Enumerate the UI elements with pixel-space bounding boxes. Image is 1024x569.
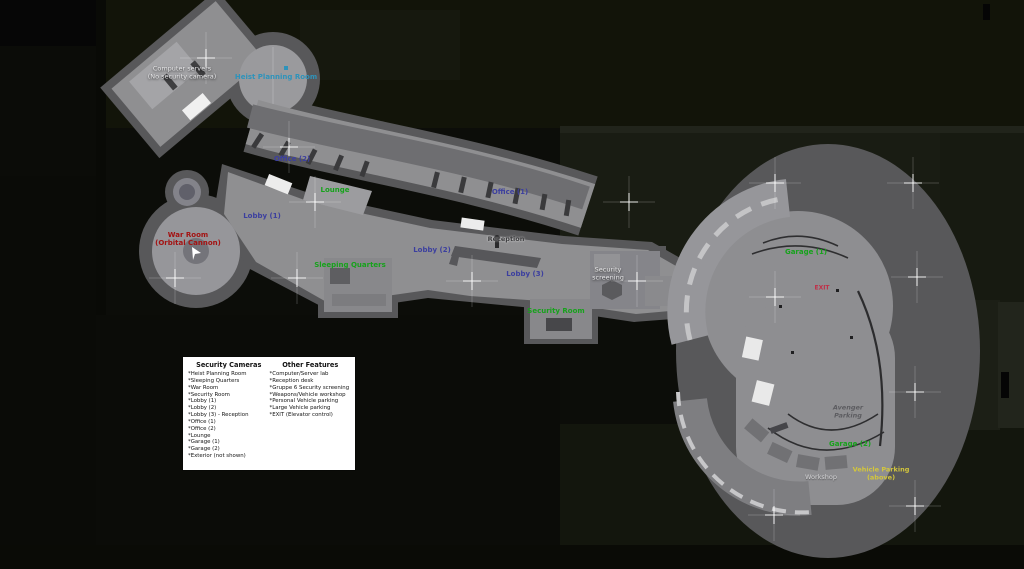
legend-item: *Personal Vehicle parking — [270, 398, 352, 405]
label-line: Lounge — [321, 186, 350, 194]
label-lobby-1: Lobby (1) — [243, 212, 281, 220]
label-security-screening: Securityscreening — [592, 266, 624, 281]
legend-other-features-list: *Computer/Server lab *Reception desk *Gr… — [270, 371, 352, 419]
legend-item: *Computer/Server lab — [270, 371, 352, 378]
label-vehicle-parking: Vehicle Parking(above) — [853, 466, 910, 481]
label-office-2: Office (2) — [274, 155, 310, 163]
label-line: Garage (2) — [829, 440, 871, 448]
label-line: (Orbital Cannon) — [155, 239, 221, 247]
label-avenger-parking: AvengerParking — [833, 404, 863, 419]
label-line: Parking — [833, 412, 863, 420]
legend-item: *Garage (2) — [188, 446, 270, 453]
label-line: Office (2) — [274, 155, 310, 163]
legend-item: *EXIT (Elevator control) — [270, 412, 352, 419]
legend-item: *Lobby (3) - Reception — [188, 412, 270, 419]
parking-oval — [676, 144, 980, 558]
legend-item: *Gruppe 6 Security screening — [270, 385, 352, 392]
label-heist-planning-room: Heist Planning Room — [235, 73, 317, 81]
legend-item: *Office (2) — [188, 426, 270, 433]
label-line: Lobby (1) — [243, 212, 281, 220]
label-garage-1: Garage (1) — [785, 248, 827, 256]
legend-security-cameras-column: Security Cameras *Heist Planning Room *S… — [188, 361, 270, 460]
label-workshop: Workshop — [805, 474, 837, 482]
label-war-room: War Room(Orbital Cannon) — [155, 231, 221, 248]
legend-item: *Exterior (not shown) — [188, 453, 270, 460]
label-reception: Reception — [488, 236, 525, 244]
legend-other-features-column: Other Features *Computer/Server lab *Rec… — [270, 361, 352, 460]
legend-columns: Security Cameras *Heist Planning Room *S… — [188, 361, 351, 460]
legend-item: *Heist Planning Room — [188, 371, 270, 378]
label-line: Sleeping Quarters — [314, 261, 386, 269]
label-line: (above) — [853, 474, 910, 482]
label-lounge: Lounge — [321, 186, 350, 194]
legend-item: *Security Room — [188, 392, 270, 399]
label-line: Reception — [488, 236, 525, 244]
label-line: (No security camera) — [148, 73, 217, 81]
label-line: Lobby (2) — [413, 246, 451, 254]
label-garage-2: Garage (2) — [829, 440, 871, 448]
label-line: Security Room — [527, 307, 584, 315]
label-line: Workshop — [805, 474, 837, 482]
legend-item: *War Room — [188, 385, 270, 392]
legend-item: *Lobby (2) — [188, 405, 270, 412]
facility-map-screenshot: Computer servers(No security camera) Hei… — [0, 0, 1024, 569]
legend-item: *Lobby (1) — [188, 398, 270, 405]
label-exit: EXIT — [814, 284, 829, 291]
label-line: EXIT — [814, 284, 829, 291]
label-line: War Room — [155, 231, 221, 239]
label-sleeping-quarters: Sleeping Quarters — [314, 261, 386, 269]
map-legend: Security Cameras *Heist Planning Room *S… — [183, 357, 355, 470]
legend-item: *Reception desk — [270, 378, 352, 385]
label-line: Lobby (3) — [506, 270, 544, 278]
legend-security-cameras-list: *Heist Planning Room *Sleeping Quarters … — [188, 371, 270, 460]
legend-item: *Sleeping Quarters — [188, 378, 270, 385]
legend-item: *Weapons/Vehicle workshop — [270, 392, 352, 399]
label-line: Office (1) — [492, 188, 528, 196]
facility-map-graphic — [0, 0, 1024, 569]
label-line: Garage (1) — [785, 248, 827, 256]
label-lobby-2: Lobby (2) — [413, 246, 451, 254]
label-computer-servers: Computer servers(No security camera) — [148, 65, 217, 80]
legend-item: *Lounge — [188, 433, 270, 440]
label-office-1: Office (1) — [492, 188, 528, 196]
legend-item: *Large Vehicle parking — [270, 405, 352, 412]
legend-other-features-title: Other Features — [270, 361, 352, 369]
legend-item: *Office (1) — [188, 419, 270, 426]
label-security-room: Security Room — [527, 307, 584, 315]
label-lobby-3: Lobby (3) — [506, 270, 544, 278]
label-line: Heist Planning Room — [235, 73, 317, 81]
legend-security-cameras-title: Security Cameras — [188, 361, 270, 369]
label-line: screening — [592, 274, 624, 282]
legend-item: *Garage (1) — [188, 439, 270, 446]
